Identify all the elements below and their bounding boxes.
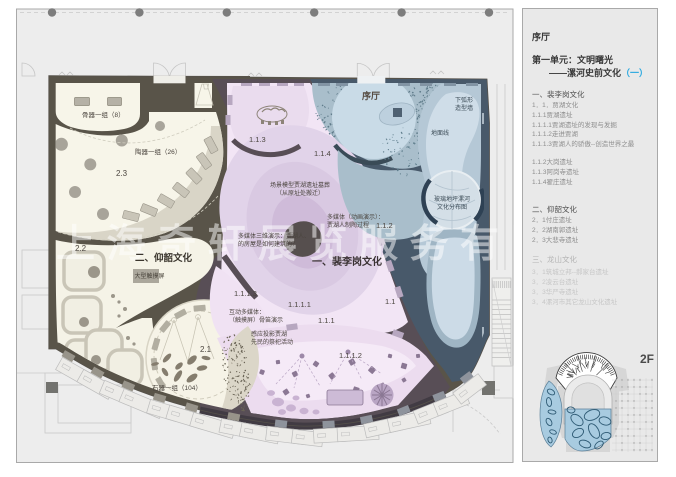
svg-text:3．2凌云台遗址: 3．2凌云台遗址 — [532, 277, 579, 286]
svg-text:场景模型贾湖遗址墓葬: 场景模型贾湖遗址墓葬 — [270, 181, 330, 189]
svg-text:大型触摸屏: 大型触摸屏 — [135, 272, 165, 280]
svg-text:2F: 2F — [640, 352, 654, 366]
svg-text:先民的祭祀活动: 先民的祭祀活动 — [251, 338, 293, 346]
svg-text:石器一组（104）: 石器一组（104） — [152, 383, 202, 392]
svg-text:造型墙: 造型墙 — [455, 104, 473, 112]
svg-text:1.1.4翟庄遗址: 1.1.4翟庄遗址 — [532, 177, 573, 186]
svg-text:2.2: 2.2 — [75, 244, 87, 253]
svg-text:多媒体（动画演示）：: 多媒体（动画演示）： — [327, 213, 384, 221]
svg-text:2．1付庄遗址: 2．1付庄遗址 — [532, 215, 572, 224]
svg-text:1.1.1.2: 1.1.1.2 — [339, 351, 362, 360]
svg-text:序厅: 序厅 — [532, 31, 550, 42]
svg-text:1.1.1.2走进贾湖: 1.1.1.2走进贾湖 — [532, 129, 578, 138]
svg-text:的房屋是如何建筑的？: 的房屋是如何建筑的？ — [238, 240, 298, 248]
svg-text:1.1: 1.1 — [385, 297, 395, 306]
svg-text:1.1.1.3贾湖人的骄傲--创造世界之最: 1.1.1.3贾湖人的骄傲--创造世界之最 — [532, 139, 635, 148]
svg-text:3．4漯河市其它龙山文化遗址: 3．4漯河市其它龙山文化遗址 — [532, 297, 618, 306]
svg-text:3．1筑城立邦--郝家台遗址: 3．1筑城立邦--郝家台遗址 — [532, 267, 609, 276]
svg-text:1.1.3阿岗寺遗址: 1.1.3阿岗寺遗址 — [532, 167, 579, 176]
svg-text:序厅: 序厅 — [362, 90, 380, 101]
svg-text:下弧形: 下弧形 — [455, 96, 473, 104]
svg-text:1.1.1贾湖遗址: 1.1.1贾湖遗址 — [532, 110, 573, 119]
svg-text:2．2湖南郭遗址: 2．2湖南郭遗址 — [532, 225, 579, 234]
svg-text:1.1.1: 1.1.1 — [318, 316, 335, 325]
svg-text:1.1.3: 1.1.3 — [249, 135, 266, 144]
svg-text:第一单元：文明曙光: 第一单元：文明曙光 — [532, 54, 613, 65]
svg-text:文化分布图: 文化分布图 — [437, 203, 467, 211]
svg-text:（触摸屏）骨笛演示: （触摸屏）骨笛演示 — [229, 316, 283, 324]
svg-text:一、裴李岗文化: 一、裴李岗文化 — [532, 89, 585, 99]
svg-text:（从原址处搬迁）: （从原址处搬迁） — [276, 189, 324, 197]
svg-text:一、裴李岗文化: 一、裴李岗文化 — [312, 255, 382, 268]
svg-text:1.1.1.1贾湖遗址的发现与发掘: 1.1.1.1贾湖遗址的发现与发掘 — [532, 120, 617, 129]
svg-text:多媒体三维演示：贾湖人、: 多媒体三维演示：贾湖人、 — [238, 232, 310, 240]
svg-text:玻璃地坪漯河: 玻璃地坪漯河 — [434, 195, 470, 203]
svg-text:1.1.2: 1.1.2 — [376, 221, 393, 230]
svg-text:二、仰韶文化: 二、仰韶文化 — [532, 204, 577, 214]
svg-text:3．3华严寺遗址: 3．3华严寺遗址 — [532, 287, 579, 296]
svg-text:1.1.1.1: 1.1.1.1 — [288, 300, 311, 309]
svg-text:陶器一组（26）: 陶器一组（26） — [135, 147, 181, 156]
svg-text:互动多媒体：: 互动多媒体： — [229, 308, 265, 316]
svg-text:二、仰韶文化: 二、仰韶文化 — [135, 252, 193, 264]
svg-text:感应投影贾湖: 感应投影贾湖 — [251, 330, 287, 338]
svg-text:地面线: 地面线 — [431, 129, 449, 137]
svg-text:2.1: 2.1 — [200, 345, 212, 354]
svg-text:1.1.4: 1.1.4 — [314, 149, 331, 158]
svg-text:1.1.1.3: 1.1.1.3 — [234, 289, 257, 298]
svg-text:三、龙山文化: 三、龙山文化 — [532, 254, 577, 264]
svg-text:1．1．贾湖文化: 1．1．贾湖文化 — [532, 100, 579, 109]
svg-text:骨器一组（8）: 骨器一组（8） — [82, 110, 125, 119]
svg-text:1.1.2大岗遗址: 1.1.2大岗遗址 — [532, 157, 573, 166]
svg-text:2.3: 2.3 — [116, 169, 128, 178]
svg-text:贾湖人制陶过程: 贾湖人制陶过程 — [327, 221, 369, 229]
svg-text:2．3大悲寺遗址: 2．3大悲寺遗址 — [532, 235, 579, 244]
svg-text:——漯河史前文化（一）: ——漯河史前文化（一） — [549, 67, 648, 78]
